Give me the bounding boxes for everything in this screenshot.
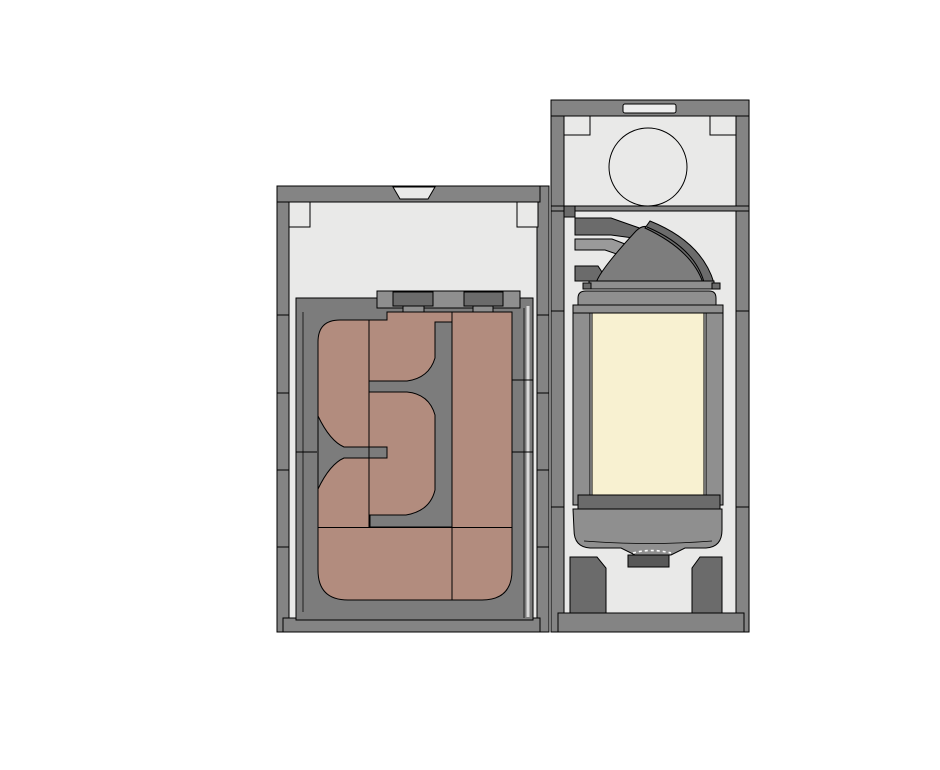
right-wall-right xyxy=(736,100,749,632)
drain-stub xyxy=(628,555,669,567)
drip-pan xyxy=(573,509,722,555)
neck-ledge xyxy=(589,281,714,289)
foot-right xyxy=(692,557,722,613)
corner-bracket-top-right xyxy=(710,116,736,135)
left-wall-right xyxy=(537,186,549,632)
neck-tab-right xyxy=(712,283,720,289)
top-slot xyxy=(623,104,676,113)
window-frame-left xyxy=(573,313,590,505)
neck-base xyxy=(573,305,723,313)
port-left xyxy=(393,292,433,306)
top-vent-notch xyxy=(393,187,435,199)
heat-exchanger-assembly xyxy=(296,291,533,620)
window-sill-bar xyxy=(578,495,720,509)
foot-left xyxy=(570,557,606,613)
chamber-divider xyxy=(551,206,749,211)
window-frame-right xyxy=(706,313,723,505)
neck-tab-left xyxy=(583,283,591,289)
divider-block xyxy=(564,206,575,217)
window-pane xyxy=(592,313,704,495)
corner-bracket-top-left xyxy=(564,116,590,135)
right-wall-left xyxy=(551,100,564,632)
corner-bracket-top-right xyxy=(517,202,538,227)
neck-bell xyxy=(578,291,716,305)
port-right xyxy=(464,292,503,306)
left-wall-left xyxy=(277,186,289,632)
fan-circle xyxy=(609,128,687,206)
corner-bracket-top-left xyxy=(289,202,310,227)
cad-canvas xyxy=(0,0,940,770)
base-bar xyxy=(558,613,744,632)
port-tab-right xyxy=(473,306,493,312)
port-tab-left xyxy=(403,306,424,312)
left-module xyxy=(277,186,549,632)
right-module xyxy=(551,100,750,632)
cad-drawing xyxy=(0,0,940,770)
